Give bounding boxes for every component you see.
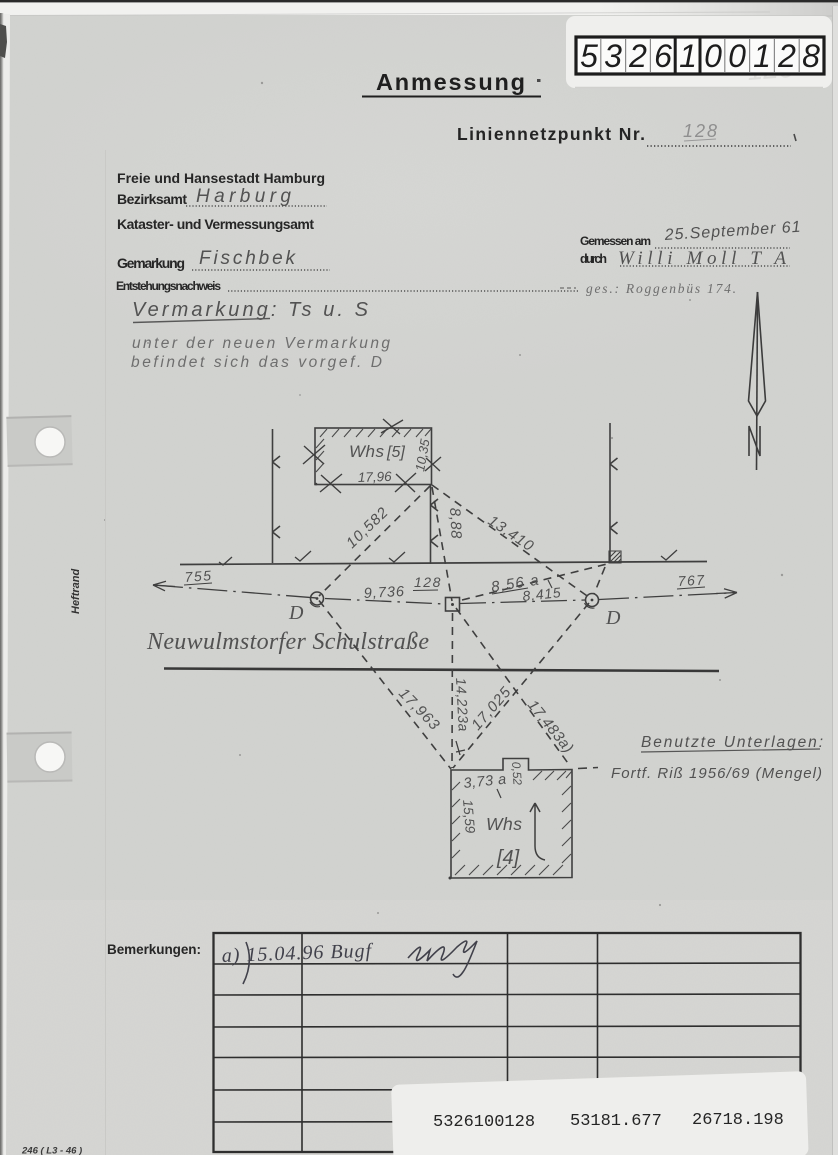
svg-text:128: 128 xyxy=(683,121,719,141)
svg-text:5326100128: 5326100128 xyxy=(433,1113,535,1132)
svg-text:[5]: [5] xyxy=(386,444,405,461)
svg-text:0: 0 xyxy=(728,38,746,74)
svg-text:9,736: 9,736 xyxy=(363,584,405,602)
svg-text:durch: durch xyxy=(580,252,607,266)
svg-text:Kataster- und Vermessungsamt: Kataster- und Vermessungsamt xyxy=(117,216,314,232)
svg-text:Whs: Whs xyxy=(486,814,523,834)
svg-text:26718.198: 26718.198 xyxy=(692,1111,784,1130)
svg-text:Benutzte Unterlagen:: Benutzte Unterlagen: xyxy=(641,734,823,751)
svg-text:Fortf. Riß 1956/69 (Mengel): Fortf. Riß 1956/69 (Mengel) xyxy=(611,765,822,782)
svg-text:Gemarkung: Gemarkung xyxy=(117,255,185,271)
svg-text:2: 2 xyxy=(777,38,796,74)
svg-text:0: 0 xyxy=(704,38,722,74)
svg-text:17,96: 17,96 xyxy=(358,469,393,485)
svg-text:8: 8 xyxy=(802,38,820,74)
svg-text:3: 3 xyxy=(604,38,622,74)
svg-text:Heftrand: Heftrand xyxy=(70,568,82,614)
svg-text:1: 1 xyxy=(753,38,771,74)
svg-text:Entstehungsnachweis: Entstehungsnachweis xyxy=(116,279,221,293)
svg-text:Freie und Hansestadt Hamburg: Freie und Hansestadt Hamburg xyxy=(117,170,325,186)
svg-text:Bemerkungen:: Bemerkungen: xyxy=(107,942,201,957)
svg-text:Fischbek: Fischbek xyxy=(199,248,297,269)
svg-text:767: 767 xyxy=(677,572,706,589)
svg-text:2: 2 xyxy=(628,38,647,74)
svg-text:246 ( L3 - 46 ): 246 ( L3 - 46 ) xyxy=(21,1146,82,1155)
svg-text:Liniennetzpunkt Nr.: Liniennetzpunkt Nr. xyxy=(457,124,645,144)
svg-text:Bezirksamt: Bezirksamt xyxy=(117,191,187,207)
svg-text:Gemessen am: Gemessen am xyxy=(580,234,651,248)
svg-text:D: D xyxy=(288,602,304,624)
svg-text:Whs: Whs xyxy=(349,442,385,461)
svg-text:Anmessung: Anmessung xyxy=(376,69,525,95)
svg-text:755: 755 xyxy=(184,567,213,585)
svg-text:1: 1 xyxy=(679,38,697,74)
svg-text:ges.: Roggenbüs 174.: ges.: Roggenbüs 174. xyxy=(586,281,736,296)
svg-text:0,52: 0,52 xyxy=(509,761,525,786)
svg-text:15,59: 15,59 xyxy=(460,799,478,834)
svg-text:6: 6 xyxy=(654,38,672,74)
svg-text:53181.677: 53181.677 xyxy=(570,1112,662,1131)
svg-text:Neuwulmstorfer Schulstraße: Neuwulmstorfer Schulstraße xyxy=(146,629,429,655)
svg-text:8,88: 8,88 xyxy=(446,507,465,539)
svg-text:[4]: [4] xyxy=(496,847,520,869)
svg-text:5: 5 xyxy=(580,38,598,74)
svg-text:128: 128 xyxy=(414,574,442,590)
svg-text:Vermarkung: Ts u. S: Vermarkung: Ts u. S xyxy=(132,299,369,321)
svg-text:D: D xyxy=(605,607,621,629)
